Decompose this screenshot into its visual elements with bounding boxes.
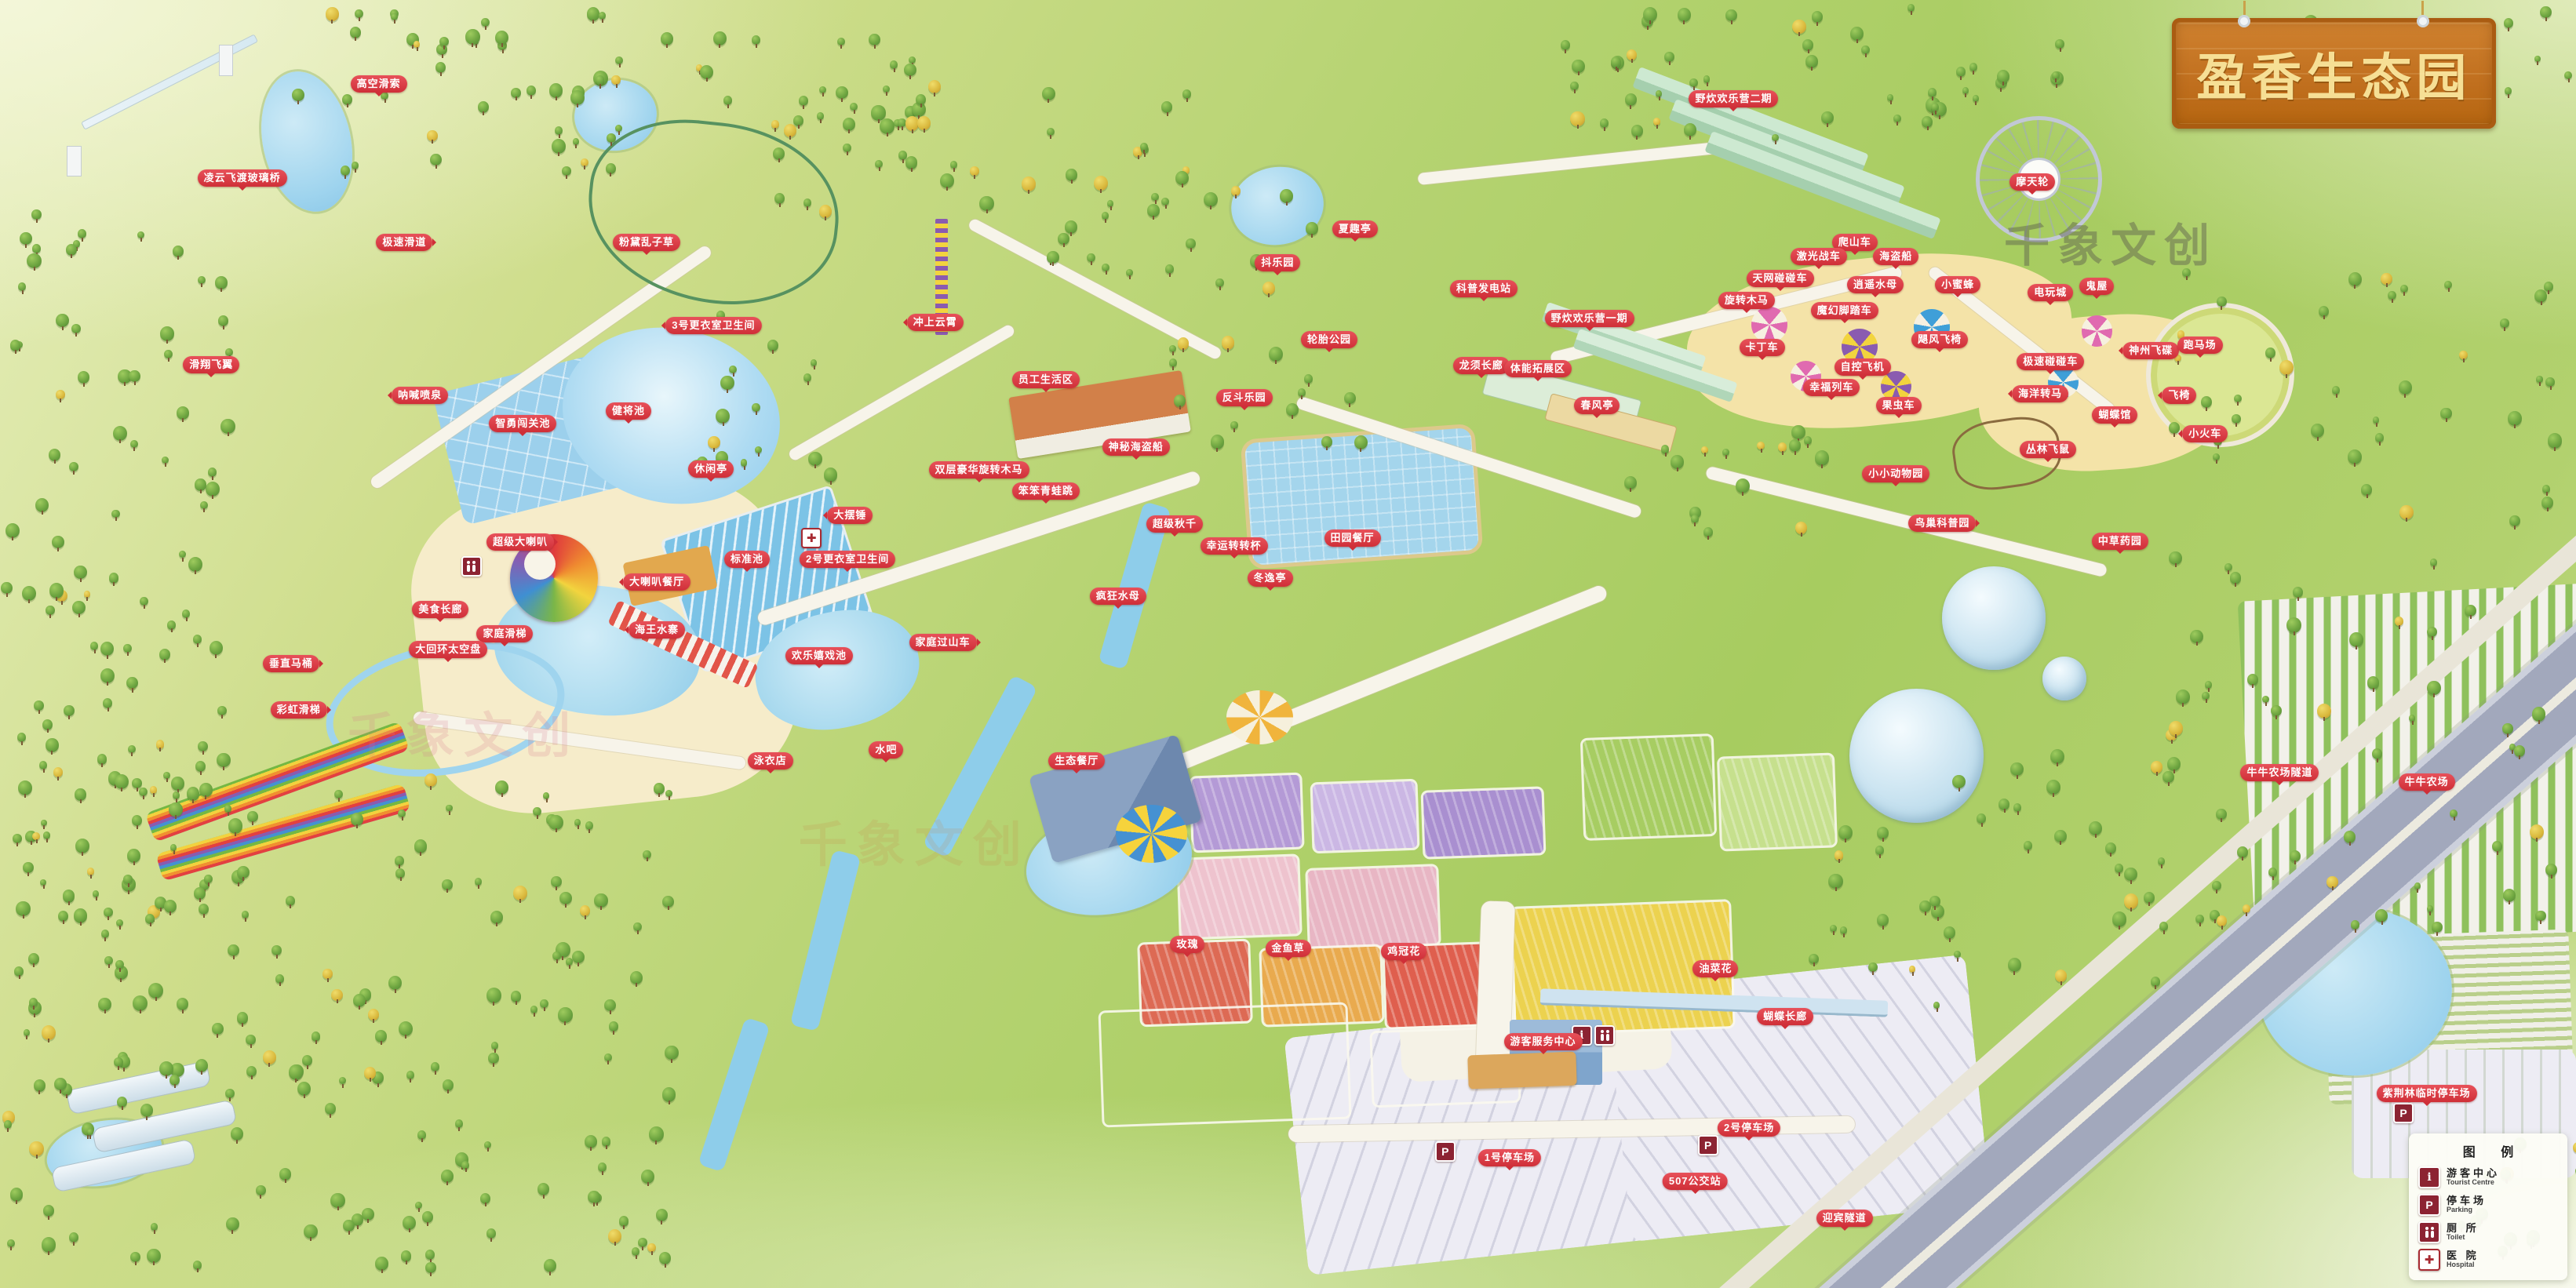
map-label: 小火车 [2182, 425, 2228, 442]
map-label: 彩虹滑梯 [271, 701, 327, 719]
map-label: 超级大喇叭 [486, 533, 554, 551]
legend-label-en: Hospital [2447, 1261, 2479, 1269]
map-label: 超级秋千 [1146, 515, 1203, 533]
map-label: 海盗船 [1873, 248, 1918, 265]
legend-rows: i游客中心Tourist CentreP停车场Parking厕 所Toilet✚… [2418, 1166, 2558, 1271]
map-label: 逍遥水母 [1847, 276, 1904, 293]
map-label: 美食长廊 [412, 601, 468, 618]
legend-label-en: Toilet [2447, 1234, 2479, 1242]
map-label: 海洋转马 [2012, 385, 2068, 402]
legend-item-hospital: ✚医 院Hospital [2418, 1249, 2558, 1271]
map-label: 野炊欢乐营二期 [1689, 90, 1778, 107]
map-label: 飞椅 [2162, 387, 2196, 404]
map-label: 轮胎公园 [1301, 331, 1357, 348]
map-label: 天网碰碰车 [1747, 270, 1814, 287]
map-label: 大回环太空盘 [409, 641, 487, 658]
attraction-labels: 高空滑索凌云飞渡玻璃桥极速滑道滑翔飞翼呐喊喷泉智勇闯关池健将池3号更衣室卫生间粉… [0, 0, 2576, 1288]
map-label: 笨笨青蛙跳 [1012, 482, 1080, 500]
map-label: 2号更衣室卫生间 [800, 551, 895, 568]
hospital-icon: ✚ [2418, 1249, 2440, 1271]
map-label: 鸡冠花 [1381, 943, 1426, 960]
ring-icon [2238, 15, 2250, 27]
map-label: 冬逸亭 [1248, 569, 1293, 587]
map-label: 鸟巢科普园 [1908, 515, 1976, 532]
map-label: 牛牛农场隧道 [2240, 764, 2319, 781]
map-label: 小小动物园 [1862, 465, 1929, 482]
map-label: 家庭滑梯 [476, 625, 533, 642]
map-label: 3号更衣室卫生间 [665, 317, 761, 334]
map-label: 摩天轮 [2009, 173, 2055, 191]
map-label: 抖乐园 [1255, 254, 1300, 271]
map-label: 玫瑰 [1170, 936, 1204, 953]
map-label: 幸运转转杯 [1201, 537, 1268, 555]
legend-label-zh: 停车场 [2447, 1195, 2487, 1206]
map-label: 牛牛农场 [2399, 773, 2455, 791]
map-label: 体能拓展区 [1504, 360, 1572, 377]
map-label: 蝴蝶长廊 [1757, 1008, 1813, 1025]
map-label: 小蜜蜂 [1935, 276, 1980, 293]
map-label: 大摆锤 [827, 507, 873, 524]
map-label: 田园餐厅 [1324, 529, 1381, 547]
map-label: 旋转木马 [1718, 292, 1775, 309]
map-label: 生态餐厅 [1048, 752, 1105, 770]
map-label: 卡丁车 [1740, 339, 1785, 356]
legend-item-toilet: 厕 所Toilet [2418, 1221, 2558, 1243]
map-label: 水吧 [869, 741, 903, 759]
map-label: 激光战车 [1791, 248, 1847, 265]
map-label: 飓风飞椅 [1911, 331, 1968, 348]
map-label: 野炊欢乐营一期 [1545, 310, 1634, 327]
map-label: 反斗乐园 [1216, 389, 1273, 406]
map-label: 标准池 [724, 551, 770, 568]
map-label: 粉黛乱子草 [613, 234, 680, 251]
map-label: 休闲亭 [688, 460, 734, 478]
map-label: 滑翔飞翼 [183, 356, 239, 373]
map-label: 鬼屋 [2079, 278, 2114, 295]
map-label: 家庭过山车 [909, 634, 977, 651]
map-label: 欢乐嬉戏池 [785, 647, 853, 664]
map-label: 果虫车 [1876, 397, 1922, 414]
map-label: 疯狂水母 [1090, 588, 1146, 605]
map-label: 电玩城 [2028, 284, 2073, 301]
legend-label-zh: 游客中心 [2447, 1168, 2500, 1179]
map-label: 跑马场 [2177, 337, 2223, 354]
map-label: 冲上云霄 [907, 314, 964, 331]
map-label: 海王水寨 [629, 621, 685, 639]
map-label: 大喇叭餐厅 [623, 573, 690, 591]
map-label: 夏趣亭 [1332, 220, 1378, 238]
map-label: 春风亭 [1574, 397, 1620, 414]
map-label: 迎宾隧道 [1816, 1210, 1873, 1227]
map-label: 泳衣店 [748, 752, 793, 770]
legend-panel: 图 例 i游客中心Tourist CentreP停车场Parking厕 所Toi… [2409, 1133, 2567, 1280]
map-label: 紫荆林临时停车场 [2377, 1085, 2477, 1102]
map-label: 金鱼草 [1265, 940, 1310, 957]
park-title-sign: 盈香生态园 [2172, 18, 2497, 129]
person-icon [2431, 1231, 2434, 1238]
parking-icon: P [2418, 1194, 2440, 1216]
map-label: 自控飞机 [1835, 358, 1891, 376]
map-label: 极速碰碰车 [2017, 353, 2084, 370]
map-label: 神秘海盗船 [1102, 438, 1170, 456]
map-label: 油菜花 [1692, 960, 1738, 977]
map-label: 凌云飞渡玻璃桥 [198, 169, 287, 187]
map-label: 极速滑道 [376, 234, 432, 251]
map-label: 蝴蝶馆 [2092, 406, 2137, 424]
legend-label-zh: 厕 所 [2447, 1223, 2479, 1234]
legend-item-parking: P停车场Parking [2418, 1194, 2558, 1216]
toilet-icon [2418, 1221, 2440, 1243]
map-label: 游客服务中心 [1504, 1033, 1583, 1050]
legend-label-en: Parking [2447, 1206, 2487, 1214]
map-label: 1号停车场 [1478, 1149, 1541, 1166]
map-label: 魔幻脚踏车 [1811, 302, 1878, 319]
map-label: 507公交站 [1663, 1173, 1728, 1190]
map-label: 智勇闯关池 [489, 415, 556, 432]
map-label: 员工生活区 [1012, 371, 1080, 388]
map-label: 双层豪华旋转木马 [929, 461, 1029, 478]
map-label: 健将池 [606, 402, 651, 420]
map-label: 神州飞碟 [2122, 342, 2179, 359]
info-icon: i [2418, 1166, 2440, 1188]
map-label: 科普发电站 [1450, 280, 1518, 297]
map-label: 龙须长廊 [1453, 357, 1510, 374]
map-label: 高空滑索 [351, 75, 407, 93]
park-title: 盈香生态园 [2196, 38, 2471, 110]
legend-title: 图 例 [2418, 1141, 2558, 1160]
map-label: 垂直马桶 [263, 655, 319, 672]
map-label: 中草药园 [2092, 533, 2148, 550]
legend-label-en: Tourist Centre [2447, 1179, 2500, 1187]
map-label: 丛林飞鼠 [2020, 441, 2076, 458]
legend-label-zh: 医 院 [2447, 1250, 2479, 1261]
legend-item-info: i游客中心Tourist Centre [2418, 1166, 2558, 1188]
ring-icon [2417, 15, 2429, 27]
park-map: 千象文创 千象文创 千象文创 ✚iPPP 高空滑索凌云飞渡玻璃桥极速滑道滑翔飞翼… [0, 0, 2576, 1288]
map-label: 呐喊喷泉 [392, 387, 448, 404]
map-label: 幸福列车 [1803, 379, 1860, 396]
map-label: 2号停车场 [1718, 1119, 1780, 1137]
person-icon [2425, 1231, 2428, 1238]
